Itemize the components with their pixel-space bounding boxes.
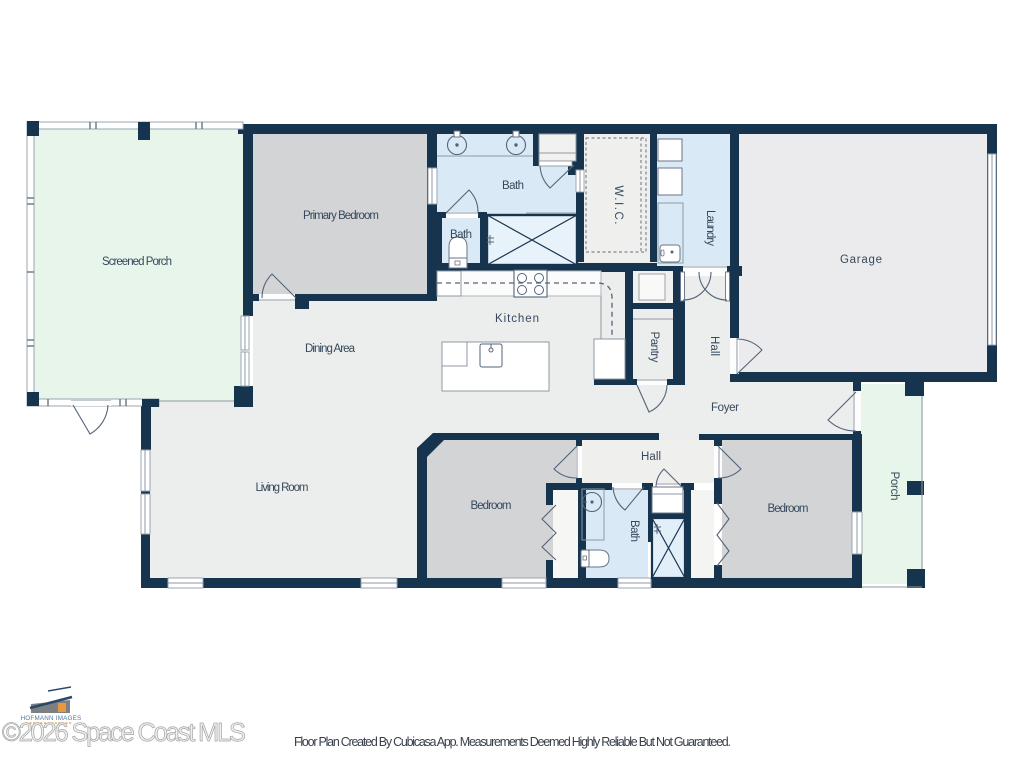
svg-text:Foyer: Foyer <box>711 402 739 414</box>
svg-text:Bath: Bath <box>502 180 524 192</box>
svg-text:Laundry: Laundry <box>704 210 716 246</box>
svg-text:Bath: Bath <box>628 520 640 542</box>
svg-text:Garage: Garage <box>840 254 882 266</box>
svg-text:Screened Porch: Screened Porch <box>102 256 172 268</box>
svg-text:Floor Plan Created By Cubicasa: Floor Plan Created By Cubicasa App. Meas… <box>294 735 731 749</box>
svg-text:Bedroom: Bedroom <box>471 500 512 512</box>
svg-text:Pantry: Pantry <box>648 332 660 363</box>
svg-text:Hall: Hall <box>708 336 720 356</box>
svg-text:Bath: Bath <box>450 229 472 241</box>
svg-text:W.I.C.: W.I.C. <box>612 186 624 225</box>
svg-text:Living Room: Living Room <box>256 482 309 494</box>
svg-text:Porch: Porch <box>888 472 900 501</box>
svg-text:Dining Area: Dining Area <box>305 343 356 355</box>
svg-text:©2026 Space Coast MLS: ©2026 Space Coast MLS <box>2 719 246 747</box>
svg-text:Hall: Hall <box>641 451 661 463</box>
svg-text:Primary Bedroom: Primary Bedroom <box>303 210 379 222</box>
svg-text:Bedroom: Bedroom <box>768 503 809 515</box>
svg-text:Kitchen: Kitchen <box>495 313 539 325</box>
